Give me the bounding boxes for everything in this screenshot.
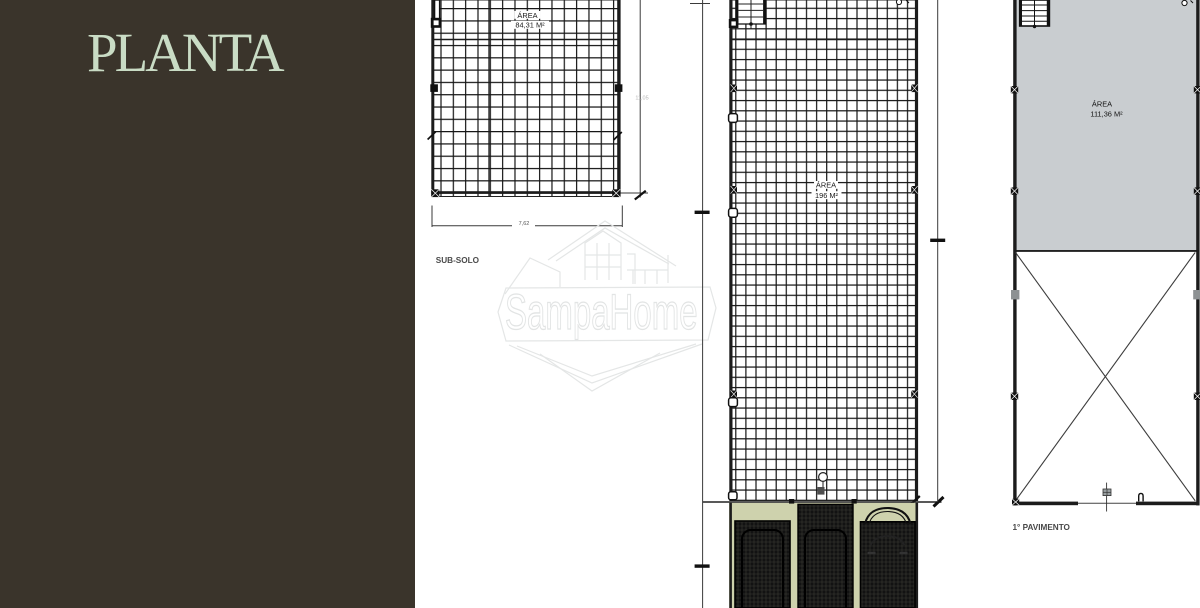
svg-text:SUB-SOLO: SUB-SOLO xyxy=(436,256,480,265)
svg-text:84,31 M²: 84,31 M² xyxy=(515,21,545,30)
svg-text:11,05: 11,05 xyxy=(635,96,648,102)
svg-text:7,62: 7,62 xyxy=(519,221,530,227)
svg-text:111,36 M²: 111,36 M² xyxy=(1090,110,1123,119)
svg-text:ÁREA: ÁREA xyxy=(816,181,836,190)
svg-text:1° PAVIMENTO: 1° PAVIMENTO xyxy=(1013,523,1071,532)
svg-text:ÁREA: ÁREA xyxy=(517,11,537,20)
svg-text:196 M²: 196 M² xyxy=(815,191,839,200)
svg-text:ÁREA: ÁREA xyxy=(1092,100,1112,109)
svg-text:SampaHome: SampaHome xyxy=(505,284,698,339)
